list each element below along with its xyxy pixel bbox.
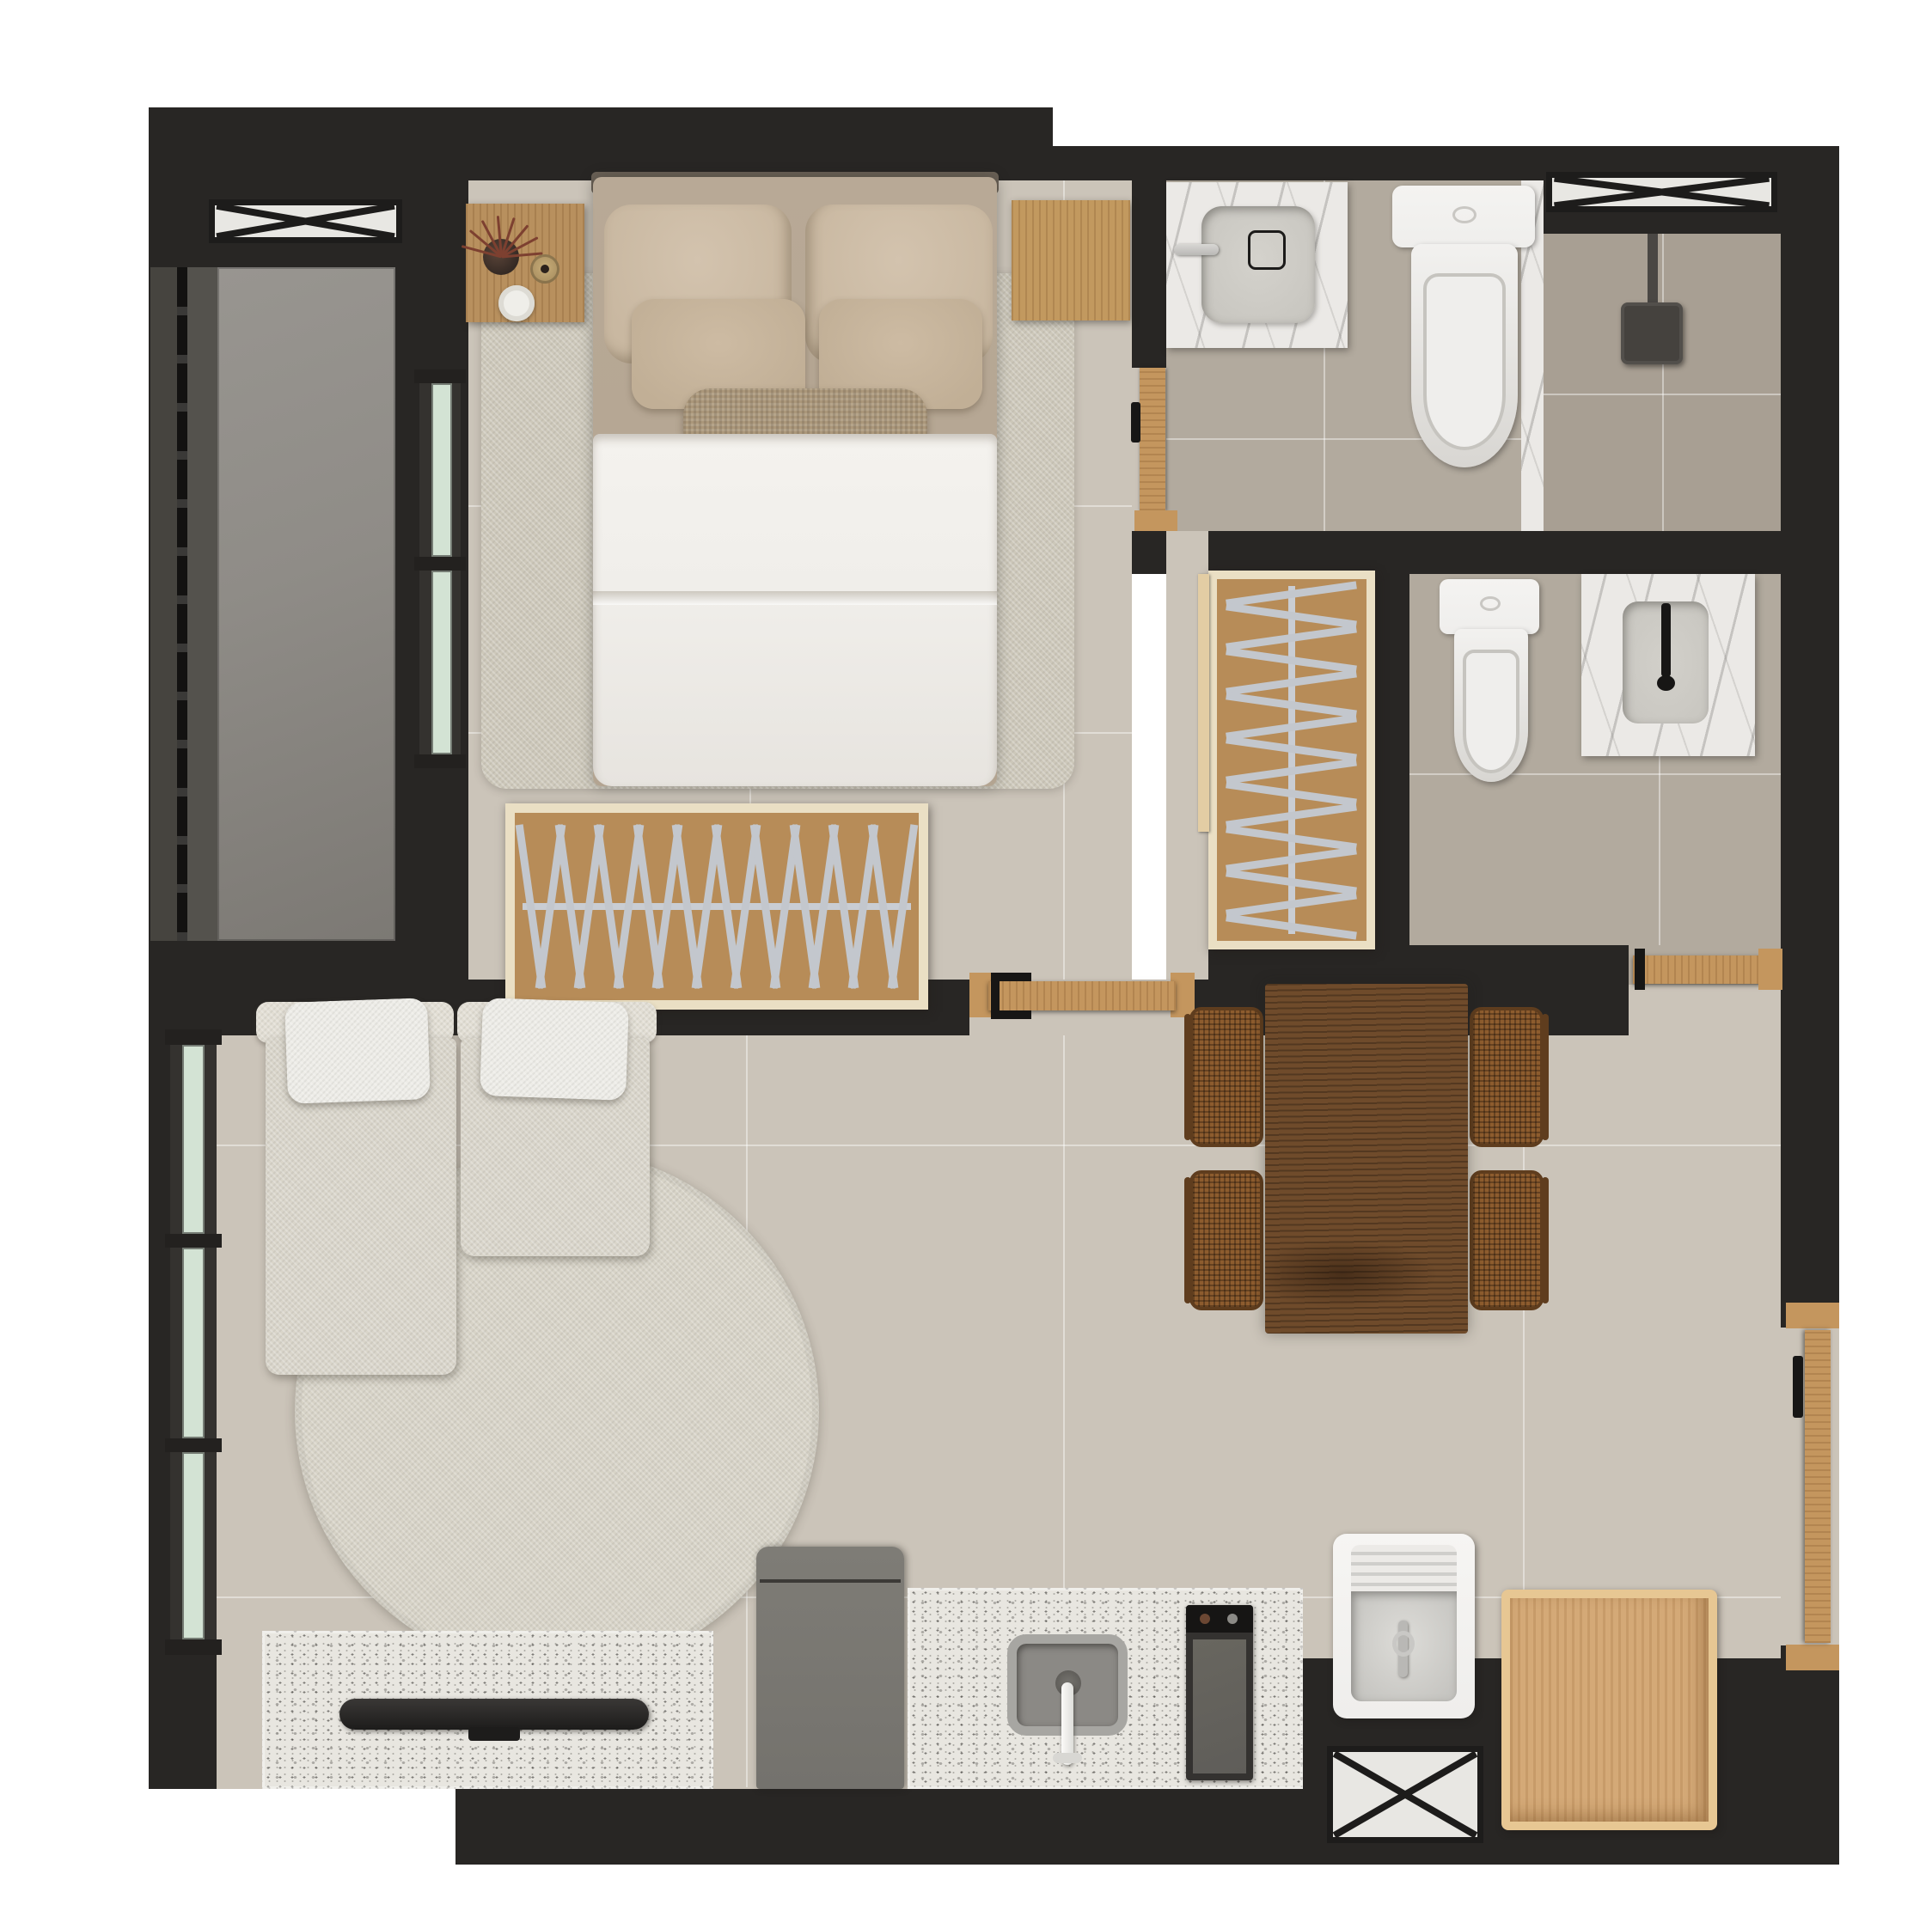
bathroom-door-jamb [1134, 510, 1177, 531]
bedroom-wardrobe [505, 803, 928, 1010]
duct-shaft-x-bottom [1327, 1746, 1483, 1843]
window-joint [414, 557, 466, 571]
window-joint [414, 754, 466, 768]
window-joint [165, 1234, 222, 1248]
slider2-handle [1635, 949, 1645, 990]
floor-plan [0, 0, 1932, 1929]
toilet-flush-button [1452, 206, 1477, 223]
rain-shower-head-icon [1621, 302, 1683, 364]
toilet-seat-ring [1423, 273, 1506, 450]
window-joint [165, 1029, 222, 1045]
bathroom-basin-drain [1248, 230, 1286, 270]
dining-chair-1 [1189, 1007, 1263, 1147]
dining-chair-1-arm [1184, 1014, 1191, 1140]
laundry-faucet-ring [1392, 1631, 1415, 1657]
slider2-jamb [1758, 949, 1782, 990]
dining-chair-3 [1470, 1007, 1544, 1147]
slider1-handle-side [991, 973, 1000, 1019]
entry-door-handle [1793, 1356, 1803, 1418]
entry-door-jamb-top [1786, 1303, 1839, 1328]
wall-toiletroom-left [1375, 531, 1409, 984]
bed-duvet-fold [593, 591, 997, 605]
living-window [170, 1029, 217, 1655]
window-joint [414, 369, 466, 383]
toilet2-flush-button [1480, 596, 1501, 611]
wall-top-bedroom [468, 107, 1053, 180]
wall-bedroom-bathroom [1132, 176, 1166, 368]
tv-stand [468, 1727, 520, 1741]
tv [339, 1699, 649, 1730]
toilet2-seat-ring [1463, 650, 1519, 773]
decor-bowl-dot [541, 265, 549, 273]
toilet-room-faucet-dot [1657, 675, 1675, 691]
sofa-pillow-right [480, 998, 629, 1101]
nightstand-right [1012, 200, 1130, 320]
balcony-hinge-track [177, 267, 187, 941]
refrigerator [756, 1547, 904, 1789]
cooktop-surface [1193, 1639, 1246, 1773]
toilet-room-faucet-icon [1661, 603, 1671, 677]
cup-icon [498, 285, 535, 321]
balcony-grey-panel [217, 267, 395, 941]
bedroom-window [419, 369, 461, 768]
refrigerator-door-line [760, 1579, 901, 1583]
window-glass [182, 1248, 205, 1438]
dining-table [1265, 984, 1468, 1334]
cooktop-knob-2 [1227, 1614, 1238, 1624]
window-joint [165, 1639, 222, 1655]
service-cabinet [1501, 1590, 1717, 1830]
slider2-opening-floor-bottom [1629, 985, 1781, 1035]
sofa-pillow-left [284, 998, 431, 1104]
slider1-door-leaf [988, 981, 1176, 1010]
bed-duvet [593, 434, 997, 786]
dining-chair-4-arm [1542, 1177, 1549, 1303]
entry-door-leaf [1805, 1330, 1831, 1643]
slider2-door-leaf [1633, 955, 1762, 984]
dining-chair-2-arm [1184, 1177, 1191, 1303]
entry-door-jamb-bottom [1786, 1645, 1839, 1670]
window-glass [431, 571, 452, 754]
window-glass [182, 1045, 205, 1234]
hall-wardrobe-side-plank [1198, 574, 1209, 832]
hall-wardrobe [1208, 571, 1375, 949]
balcony-side-strip [150, 267, 177, 941]
shower-arm-icon [1648, 234, 1658, 308]
laundry-tub-washboard [1351, 1545, 1457, 1595]
bathroom-faucet-icon [1174, 244, 1219, 255]
duct-shaft-x-top-right [1546, 172, 1777, 212]
wardrobe-rail [523, 903, 910, 910]
dining-chair-4 [1470, 1170, 1544, 1310]
cooktop-knob-strip [1186, 1605, 1253, 1633]
wall-bathroom-bottom [1132, 531, 1839, 574]
window-joint [165, 1438, 222, 1452]
kitchen-faucet-lever [1053, 1753, 1082, 1763]
shower-floor [1544, 234, 1781, 531]
dining-chair-2 [1189, 1170, 1263, 1310]
bathroom-door-leaf [1140, 368, 1165, 510]
window-glass [431, 383, 452, 557]
bathroom-door-handle [1131, 402, 1140, 443]
window-glass [182, 1452, 205, 1639]
duct-shaft-x-top-left [209, 199, 402, 243]
balcony-strip-2 [187, 267, 217, 941]
cooktop-knob-1 [1200, 1614, 1210, 1624]
dining-chair-3-arm [1542, 1014, 1549, 1140]
